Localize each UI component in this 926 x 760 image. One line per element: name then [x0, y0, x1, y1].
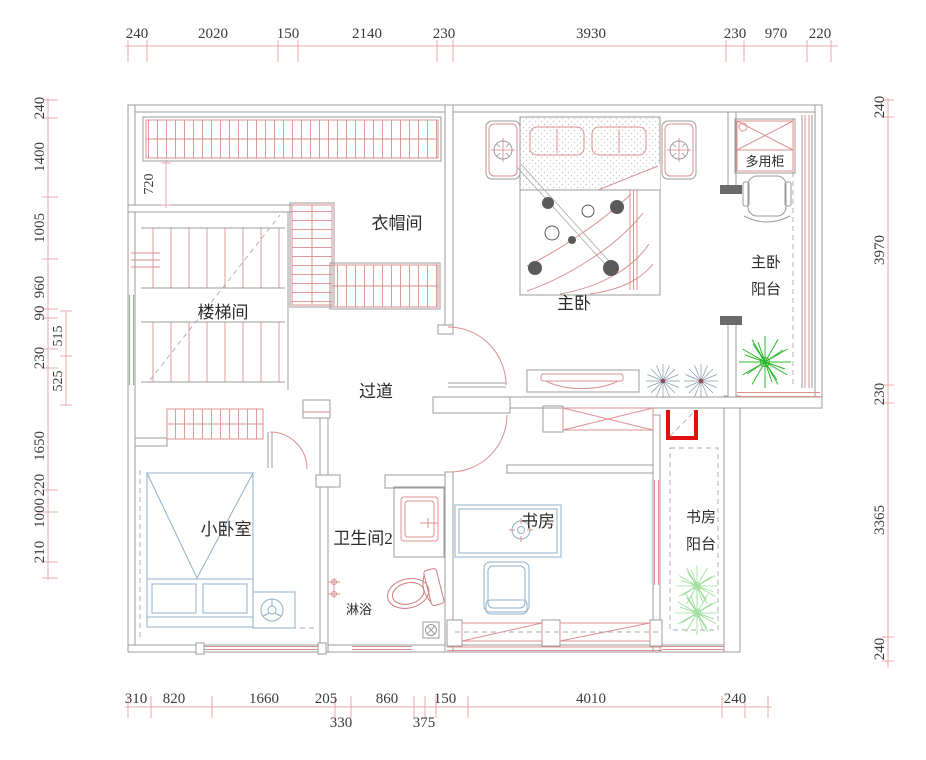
jamb — [318, 643, 326, 654]
dim-right: 3365 — [872, 505, 888, 535]
study-chair — [484, 562, 529, 612]
dim-top: 2140 — [352, 26, 382, 42]
dim-right: 230 — [872, 383, 888, 406]
wall-study-north — [507, 465, 655, 473]
label-master-balcony-1: 主卧 — [751, 254, 781, 271]
wall-door-cap — [438, 325, 453, 334]
small-bed-pillow-right — [203, 584, 247, 613]
dim-bottom: 4010 — [576, 691, 606, 707]
balcony-door-jamb-top — [720, 185, 742, 194]
wall-balcony-divider-lower — [728, 320, 736, 397]
dim-left-inner: 525 — [51, 371, 66, 392]
dim-top: 3930 — [576, 26, 606, 42]
dim-left: 240 — [32, 97, 48, 120]
dim-bottom: 205 — [315, 691, 338, 707]
label-cloakroom: 衣帽间 — [372, 214, 423, 233]
label-master-balcony-2: 阳台 — [751, 281, 781, 298]
small-bed-pillow-left — [152, 584, 196, 613]
door-leaf-bedroom — [448, 383, 506, 387]
shower-head-icon — [328, 578, 340, 598]
wall-bedroom-north-right — [303, 400, 330, 418]
dim-top: 150 — [277, 26, 300, 42]
label-shower: 淋浴 — [346, 602, 372, 617]
dim-right: 240 — [872, 638, 888, 661]
dim-left: 230 — [32, 347, 48, 370]
balcony-chair-back — [744, 216, 790, 222]
jamb — [542, 620, 560, 646]
dim-top: 240 — [126, 26, 149, 42]
label-small-bedroom: 小卧室 — [201, 520, 252, 539]
label-corridor: 过道 — [359, 382, 393, 401]
dim-top: 230 — [433, 26, 456, 42]
stair-upper-flight — [141, 228, 285, 288]
wall-right-lower — [724, 396, 740, 652]
dim-left-inner: 515 — [51, 326, 66, 347]
wall-corridor-north — [433, 397, 510, 413]
wall-top — [128, 105, 822, 112]
stair-lower-flight — [141, 322, 285, 382]
wall-bathroom-west — [320, 418, 328, 652]
wall-bathroom-north-left — [316, 475, 340, 487]
jamb — [196, 643, 204, 654]
wall-stair-north — [128, 205, 292, 212]
plant-icon-master-balcony — [739, 336, 791, 388]
dim-bottom-row2: 330 — [330, 715, 353, 731]
small-bed-foot — [147, 579, 253, 627]
dim-bottom-row2: 375 — [413, 715, 436, 731]
dim-left: 220 — [32, 474, 48, 497]
study-chair-inner — [488, 566, 525, 608]
dim-left: 1005 — [32, 213, 48, 243]
jamb — [447, 620, 462, 646]
label-study-balcony-1: 书房 — [686, 509, 716, 526]
balcony-door-jamb-bottom — [720, 316, 742, 325]
window-master-balcony-frame — [802, 115, 812, 388]
dim-left: 1400 — [32, 142, 48, 172]
toilet — [383, 568, 444, 616]
windows — [130, 115, 821, 654]
label-bathroom2: 卫生间2 — [333, 529, 393, 548]
dim-right: 240 — [872, 96, 888, 119]
dim-bottom: 150 — [434, 691, 457, 707]
dim-bottom: 860 — [376, 691, 399, 707]
dim-bottom: 820 — [163, 691, 186, 707]
door-arc-small-bedroom — [270, 432, 307, 469]
sill-master-balcony — [737, 393, 820, 397]
door-arc-study — [450, 415, 507, 472]
dim-right: 3970 — [872, 235, 888, 265]
balcony-chair-seat — [748, 176, 786, 216]
dim-closet-depth: 720 — [142, 174, 157, 195]
label-multi-cabinet: 多用柜 — [745, 154, 784, 169]
lamp-icon — [667, 138, 691, 162]
wall-cloakroom-bedroom — [445, 105, 453, 327]
faucet-icon — [420, 518, 438, 528]
label-study-balcony-2: 阳台 — [686, 536, 716, 553]
label-study: 书房 — [521, 512, 555, 531]
multi-cabinet-x — [737, 121, 793, 150]
dim-left: 960 — [32, 276, 48, 299]
console-bowl — [546, 381, 618, 389]
console-tray — [541, 374, 623, 381]
door-arc-bedroom — [448, 327, 506, 385]
wall-bedroom-north-left — [135, 438, 167, 446]
cabinet-end — [543, 406, 563, 432]
fan-plant-icon — [684, 364, 718, 398]
small-bedside-table — [253, 592, 295, 628]
washbasin-inner — [405, 501, 434, 537]
dim-left: 90 — [32, 306, 48, 321]
wall-right-upper — [815, 105, 822, 397]
plant-icon-study-balcony — [675, 591, 719, 635]
floor-drain-x — [427, 626, 435, 634]
dim-top: 970 — [765, 26, 788, 42]
staircase — [141, 215, 285, 382]
small-lamp-center — [268, 606, 276, 614]
dim-bottom: 310 — [125, 691, 148, 707]
window-master-balcony — [805, 115, 809, 388]
dim-top: 2020 — [198, 26, 228, 42]
dim-left: 1650 — [32, 431, 48, 461]
wall-bathroom-north-right — [385, 475, 445, 488]
label-staircase: 楼梯间 — [198, 303, 249, 322]
duct-diagonal — [670, 412, 694, 436]
corridor-cabinet-x — [563, 408, 653, 430]
dim-line-closet-depth — [161, 160, 171, 208]
small-bedroom-furniture — [140, 470, 318, 640]
dim-bottom: 1660 — [249, 691, 279, 707]
dim-bottom: 240 — [724, 691, 747, 707]
fan-plant-icon — [646, 364, 680, 398]
door-leaf-small-bedroom — [268, 432, 272, 468]
master-bedroom-furniture — [486, 117, 696, 392]
dim-left: 210 — [32, 541, 48, 564]
washbasin — [401, 497, 438, 541]
floor-plan: 240 2020 150 2140 230 3930 230 970 220 3… — [0, 0, 926, 760]
dim-left: 1000 — [32, 498, 48, 528]
label-master-bedroom: 主卧 — [557, 294, 591, 313]
dim-ticks-top — [128, 40, 831, 62]
dim-top: 220 — [809, 26, 832, 42]
lamp-icon — [491, 138, 515, 162]
floor-plan-drawing: 240 2020 150 2140 230 3930 230 970 220 3… — [0, 0, 926, 760]
jamb — [650, 620, 662, 646]
dim-top: 230 — [724, 26, 747, 42]
small-bedroom-dashlines — [140, 470, 318, 640]
